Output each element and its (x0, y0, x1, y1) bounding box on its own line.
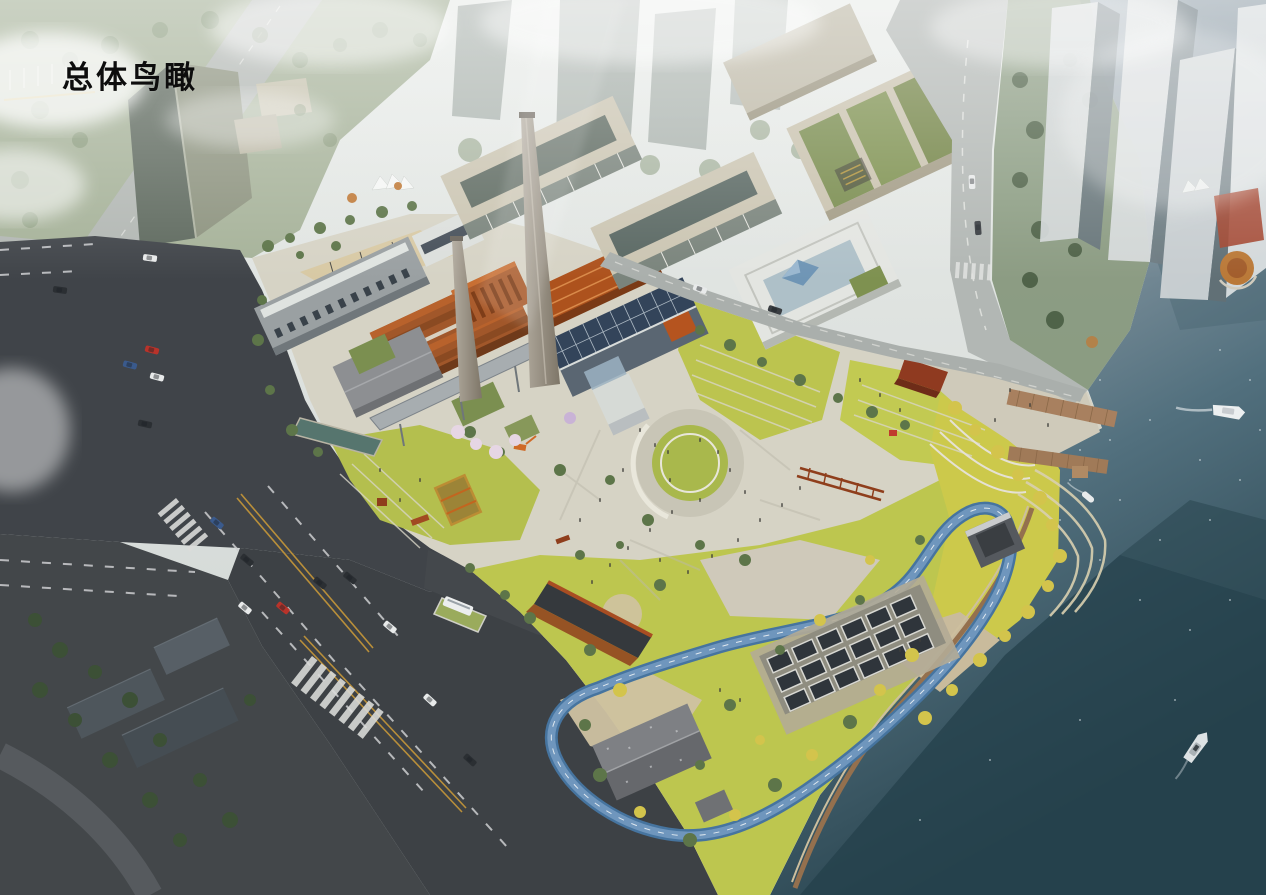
red-relic (889, 430, 897, 436)
view-title: 总体鸟瞰 (62, 52, 198, 97)
rendering-canvas (0, 0, 1266, 895)
aerial-rendering: 总体鸟瞰 (0, 0, 1266, 895)
circular-lawn (652, 425, 728, 501)
